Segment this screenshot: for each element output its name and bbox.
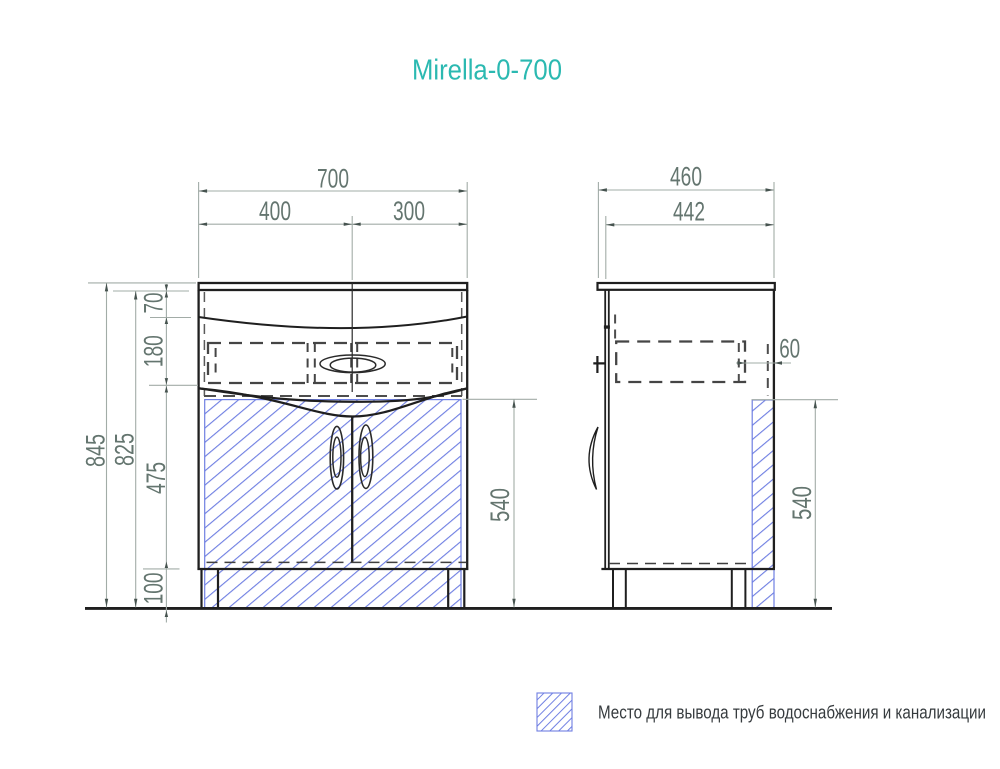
svg-text:442: 442 [673,197,705,227]
svg-text:460: 460 [670,162,702,192]
svg-text:825: 825 [110,433,140,466]
svg-text:540: 540 [485,488,515,522]
svg-text:400: 400 [259,196,291,226]
svg-text:180: 180 [138,335,168,367]
svg-text:700: 700 [317,164,349,194]
svg-text:845: 845 [81,434,111,467]
svg-text:Место для вывода труб водоснаб: Место для вывода труб водоснабжения и ка… [598,702,986,723]
svg-text:475: 475 [141,462,171,494]
svg-text:60: 60 [779,334,800,364]
svg-text:Mirella-0-700: Mirella-0-700 [412,55,562,87]
svg-text:70: 70 [138,293,168,314]
svg-text:300: 300 [393,196,425,226]
svg-text:540: 540 [787,486,817,520]
svg-text:100: 100 [139,572,169,604]
